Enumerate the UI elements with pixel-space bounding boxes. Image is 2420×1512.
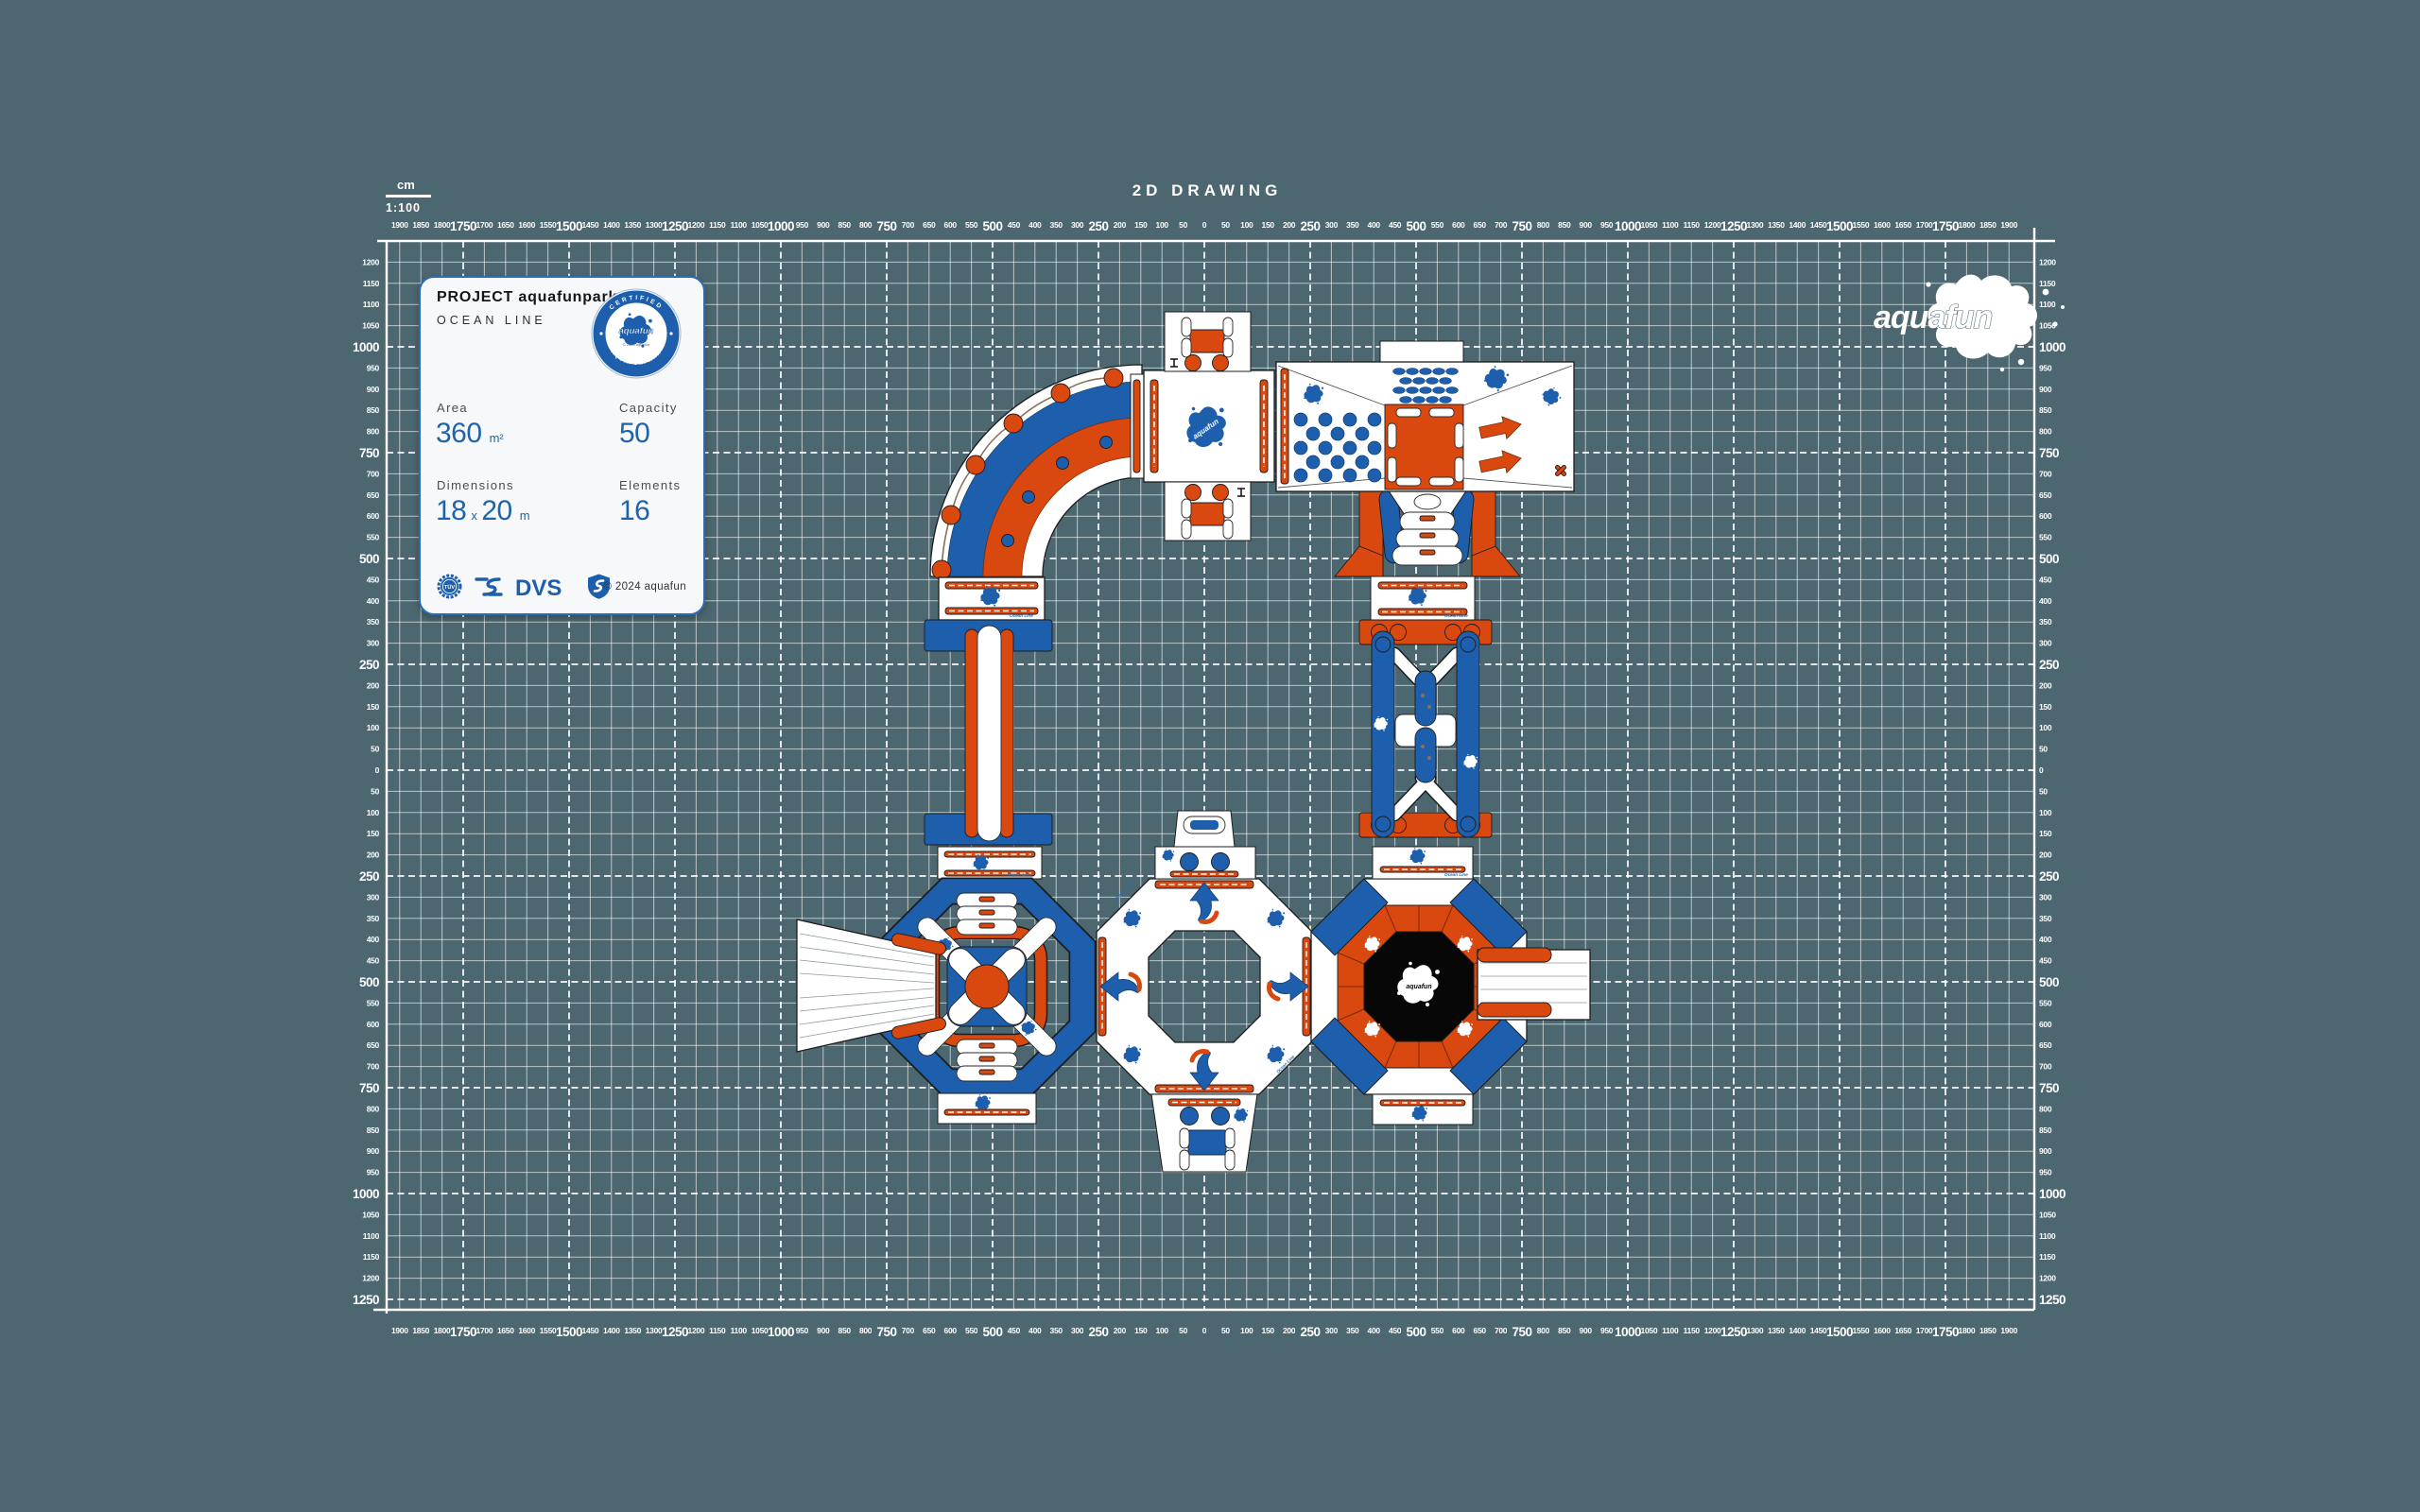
ruler-label: 600	[944, 220, 958, 230]
ruler-label: 800	[859, 220, 873, 230]
brand-logo-text: aquafun	[1874, 300, 1992, 335]
ruler-label: 350	[2039, 617, 2052, 627]
ruler-label: 500	[982, 219, 1002, 233]
ruler-label: 1050	[362, 1210, 379, 1219]
pillow-stack-top	[957, 893, 1017, 935]
ruler-label: 1300	[646, 1326, 663, 1335]
ruler-label: 1050	[1641, 220, 1658, 230]
ruler-label: 250	[2039, 869, 2059, 884]
ruler-label: 700	[367, 1062, 380, 1072]
ruler-label: 900	[367, 1146, 380, 1156]
ruler-label: 1750	[450, 1325, 476, 1339]
ruler-label: 200	[1114, 1326, 1127, 1335]
ruler-label: 1200	[2039, 257, 2056, 266]
ruler-label: 900	[2039, 1146, 2052, 1156]
ruler-label: 1100	[1662, 220, 1679, 230]
ruler-label: 1000	[1615, 1325, 1641, 1339]
ruler-label: 750	[2039, 1081, 2059, 1095]
ruler-label: 1450	[1810, 1326, 1827, 1335]
ruler-label: 600	[944, 1326, 958, 1335]
scale-bar	[386, 195, 431, 198]
ruler-label: 300	[1325, 1326, 1339, 1335]
ruler-label: 200	[1114, 220, 1127, 230]
ruler-label: 550	[965, 220, 978, 230]
ruler-label: 1200	[1704, 220, 1721, 230]
ruler-label: 1300	[1747, 1326, 1764, 1335]
ruler-label: 1550	[1853, 220, 1870, 230]
ruler-label: 850	[367, 1125, 380, 1135]
ruler-label: 1150	[709, 1326, 726, 1335]
ruler-label: 450	[1389, 220, 1402, 230]
ruler-label: 1850	[1979, 220, 1996, 230]
trampoline-brand-label: aquafun	[1406, 984, 1431, 990]
ruler-label: 150	[1262, 1326, 1275, 1335]
ruler-label: 800	[1537, 1326, 1550, 1335]
ruler-label: 1600	[518, 1326, 535, 1335]
ruler-label: 1200	[362, 1274, 379, 1283]
ruler-label: 700	[902, 1326, 915, 1335]
ruler-label: 1150	[1684, 1326, 1701, 1335]
dvs-logo: DVS	[515, 575, 574, 599]
page-title: 2D DRAWING	[1094, 181, 1321, 200]
ruler-label: 50	[1221, 220, 1230, 230]
ruler-label: 1250	[353, 1293, 379, 1307]
tuv-label: TÜV	[444, 584, 455, 591]
ruler-label: 1050	[362, 321, 379, 331]
ruler-label: 1550	[540, 1326, 557, 1335]
ruler-label: 300	[2039, 892, 2052, 902]
ruler-label: 1900	[2000, 1326, 2017, 1335]
ruler-label: 800	[859, 1326, 873, 1335]
ruler-label: 450	[1008, 1326, 1021, 1335]
ruler-label: 150	[367, 702, 380, 712]
ruler-label: 1600	[518, 220, 535, 230]
module-connector-c	[938, 1093, 1036, 1124]
ruler-label: 50	[1221, 1326, 1230, 1335]
ruler-label: 1300	[1747, 220, 1764, 230]
ruler-label: 300	[1325, 220, 1339, 230]
ruler-label: 600	[1452, 220, 1465, 230]
ruler-label: 1450	[1810, 220, 1827, 230]
scale-legend: cm 1:100	[386, 178, 431, 215]
ruler-label: 500	[1406, 1325, 1426, 1339]
ruler-label: 550	[1431, 1326, 1444, 1335]
ruler-label: 800	[1537, 220, 1550, 230]
ruler-label: 1100	[363, 300, 380, 309]
dimensions-label: Dimensions	[437, 478, 514, 492]
ruler-label: 50	[371, 745, 379, 754]
ruler-label: 0	[375, 765, 380, 775]
ruler-label: 600	[2039, 511, 2052, 521]
module-connector-f: Ocean Line	[1371, 576, 1475, 620]
badge-small-copy: © 2024 aquafun	[623, 342, 650, 347]
ruler-label: 450	[367, 575, 380, 584]
ruler-label: 50	[371, 786, 379, 796]
ruler-label: 1100	[1662, 1326, 1679, 1335]
ruler-label: 1900	[391, 1326, 408, 1335]
ruler-label: 500	[2039, 552, 2059, 566]
ruler-label: 1100	[731, 220, 748, 230]
ruler-label: 650	[1474, 1326, 1487, 1335]
ruler-label: 900	[2039, 385, 2052, 394]
ruler-label: 1600	[1874, 220, 1891, 230]
dimension-separator: x	[471, 508, 476, 523]
badge-brand: aquafun	[619, 326, 654, 336]
ruler-label: 1150	[2039, 1252, 2056, 1262]
ruler-label: 1400	[1789, 220, 1806, 230]
ruler-label: 1500	[556, 1325, 582, 1339]
ruler-label: 100	[2039, 723, 2052, 732]
ruler-label: 150	[2039, 829, 2052, 838]
ruler-label: 700	[2039, 469, 2052, 478]
ruler-label: 250	[1088, 219, 1108, 233]
module-connector-b: Ocean Line	[938, 847, 1042, 879]
ruler-label: 400	[1028, 220, 1042, 230]
ruler-label: 900	[817, 220, 830, 230]
ruler-label: 750	[1512, 219, 1531, 233]
capacity-value: 50	[619, 418, 649, 449]
ruler-label: 1750	[450, 219, 476, 233]
ruler-label: 50	[1179, 220, 1187, 230]
ruler-label: 1050	[1641, 1326, 1658, 1335]
module-mountain-slide	[1335, 489, 1520, 576]
module-connector-ring-bottom	[1151, 1094, 1257, 1172]
certified-badge: CERTIFIED AQUAFUNPARK aquafun © 2024 aqu…	[590, 287, 683, 380]
ruler-label: 450	[1008, 220, 1021, 230]
ruler-label: 550	[2039, 533, 2052, 542]
ruler-label: 1850	[412, 220, 429, 230]
ruler-label: 700	[367, 469, 380, 478]
ruler-label: 950	[367, 363, 380, 372]
gs-wave-logo-icon	[475, 575, 503, 599]
ruler-label: 550	[2039, 998, 2052, 1007]
ruler-label: 400	[367, 596, 380, 606]
ruler-label: 350	[367, 617, 380, 627]
ruler-label: 1450	[582, 1326, 599, 1335]
ruler-label: 300	[367, 639, 380, 648]
ruler-label: 50	[2039, 745, 2048, 754]
ruler-label: 600	[1452, 1326, 1465, 1335]
ruler-label: 1600	[1874, 1326, 1891, 1335]
ruler-label: 750	[2039, 446, 2059, 460]
ruler-label: 1250	[662, 219, 688, 233]
ruler-label: 1250	[2039, 1293, 2066, 1307]
module-connector-ring-top	[1155, 811, 1255, 879]
drawing-canvas: 1900190018501850180018001750175017001700…	[0, 0, 2420, 1512]
ruler-label: 650	[923, 1326, 936, 1335]
ruler-label: 1050	[752, 1326, 769, 1335]
dimension-width: 18	[436, 495, 466, 526]
ruler-label: 100	[1240, 1326, 1253, 1335]
ocean-line-label: Ocean Line	[1008, 872, 1031, 877]
ruler-label: 1200	[1704, 1326, 1721, 1335]
ruler-label: 950	[367, 1168, 380, 1177]
ruler-label: 550	[367, 998, 380, 1007]
ocean-line-label: Ocean Line	[1010, 613, 1033, 618]
ruler-label: 900	[367, 385, 380, 394]
ruler-label: 500	[1406, 219, 1426, 233]
ruler-label: 750	[876, 219, 896, 233]
ruler-label: 200	[2039, 680, 2052, 690]
ruler-label: 1550	[540, 220, 557, 230]
ruler-label: 850	[838, 1326, 852, 1335]
ruler-label: 0	[1202, 220, 1207, 230]
ruler-label: 900	[817, 1326, 830, 1335]
ruler-label: 1700	[476, 220, 493, 230]
ruler-label: 1150	[709, 220, 726, 230]
ruler-label: 1100	[363, 1231, 380, 1241]
ruler-label: 1000	[768, 1325, 794, 1339]
ruler-label: 650	[923, 220, 936, 230]
ruler-label: 250	[2039, 658, 2059, 672]
ruler-label: 1800	[1959, 1326, 1976, 1335]
ruler-label: 450	[2039, 956, 2052, 966]
ruler-label: 250	[1300, 1325, 1320, 1339]
ruler-label: 150	[1134, 220, 1148, 230]
ruler-label: 700	[1495, 220, 1508, 230]
ruler-label: 100	[1156, 1326, 1169, 1335]
ruler-label: 550	[367, 533, 380, 542]
module-ladder-bottom	[1165, 482, 1251, 541]
ruler-label: 1400	[1789, 1326, 1806, 1335]
ruler-label: 450	[2039, 575, 2052, 584]
ruler-label: 250	[1088, 1325, 1108, 1339]
ruler-label: 1550	[1853, 1326, 1870, 1335]
ruler-label: 650	[1474, 220, 1487, 230]
ocean-line-label: Ocean Line	[1444, 872, 1468, 877]
ruler-label: 1700	[1916, 1326, 1933, 1335]
ruler-label: 700	[902, 220, 915, 230]
area-value: 360	[436, 418, 482, 449]
ruler-label: 600	[367, 511, 380, 521]
module-summit-climb	[1276, 341, 1574, 491]
ruler-label: 1850	[412, 1326, 429, 1335]
ruler-label: 1050	[2039, 1210, 2056, 1219]
module-connector-d: Ocean Line	[1373, 847, 1473, 879]
ruler-label: 350	[1050, 220, 1063, 230]
ruler-label: 1900	[2000, 220, 2017, 230]
ruler-label: 350	[367, 914, 380, 923]
dimension-length: 20	[481, 495, 511, 526]
ruler-label: 1750	[1932, 1325, 1959, 1339]
ruler-label: 1150	[1684, 220, 1701, 230]
ruler-label: 400	[1368, 1326, 1381, 1335]
ruler-label: 750	[876, 1325, 896, 1339]
ruler-label: 1750	[1932, 219, 1959, 233]
module-exit-ramp-left	[797, 919, 947, 1052]
ruler-label: 900	[1580, 1326, 1593, 1335]
ruler-label: 1450	[582, 220, 599, 230]
ruler-label: 0	[2039, 765, 2044, 775]
certification-logos: TÜV DVS	[437, 573, 612, 600]
ruler-label: 1200	[688, 220, 705, 230]
ruler-label: 750	[1512, 1325, 1531, 1339]
ruler-label: 1150	[363, 1252, 380, 1262]
ruler-label: 1500	[1826, 219, 1853, 233]
ruler-label: 1350	[624, 1326, 641, 1335]
ruler-label: 200	[367, 680, 380, 690]
ruler-label: 850	[838, 220, 852, 230]
module-start-platform: aquafun	[1131, 370, 1274, 482]
module-connector-e	[1373, 1094, 1473, 1125]
copyright: © 2024 aquafun	[603, 581, 686, 593]
ruler-label: 1400	[603, 220, 620, 230]
ruler-label: 1400	[603, 1326, 620, 1335]
ruler-label: 300	[1071, 1326, 1084, 1335]
ruler-label: 1350	[1768, 220, 1785, 230]
park-layout: Ocean Line Ocean Line	[797, 312, 1590, 1172]
ruler-label: 550	[965, 1326, 978, 1335]
ruler-label: 400	[2039, 596, 2052, 606]
ruler-label: 150	[367, 829, 380, 838]
module-balance-beam	[1359, 620, 1492, 837]
area-label: Area	[437, 401, 468, 415]
ruler-label: 1650	[1894, 1326, 1911, 1335]
ruler-label: 150	[1134, 1326, 1148, 1335]
ruler-label: 600	[2039, 1020, 2052, 1029]
ruler-label: 1000	[768, 219, 794, 233]
elements-label: Elements	[619, 478, 681, 492]
module-exit-ramp-right	[1478, 948, 1590, 1020]
ruler-label: 1000	[1615, 219, 1641, 233]
dvs-label: DVS	[515, 576, 562, 599]
ruler-label: 400	[1368, 220, 1381, 230]
ruler-label: 1100	[731, 1326, 748, 1335]
ruler-label: 400	[2039, 935, 2052, 944]
ruler-label: 400	[367, 935, 380, 944]
ruler-label: 600	[367, 1020, 380, 1029]
ruler-label: 1250	[1720, 1325, 1747, 1339]
ruler-label: 850	[1558, 1326, 1571, 1335]
ruler-label: 650	[367, 490, 380, 500]
ruler-label: 800	[367, 1104, 380, 1113]
module-curved-slide	[930, 365, 1142, 579]
ruler-label: 100	[1156, 220, 1169, 230]
dimension-unit: m	[520, 508, 530, 523]
ruler-label: 700	[2039, 1062, 2052, 1072]
ruler-label: 950	[2039, 1168, 2052, 1177]
ruler-label: 1650	[497, 220, 514, 230]
ruler-label: 1700	[476, 1326, 493, 1335]
module-connector-a: Ocean Line	[939, 577, 1045, 620]
ruler-label: 850	[367, 405, 380, 415]
ruler-label: 300	[367, 892, 380, 902]
ruler-label: 300	[2039, 639, 2052, 648]
ruler-label: 950	[1600, 1326, 1614, 1335]
ruler-label: 400	[1028, 1326, 1042, 1335]
ruler-label: 100	[2039, 808, 2052, 817]
ruler-label: 850	[2039, 405, 2052, 415]
ruler-label: 1000	[353, 1187, 379, 1201]
ruler-label: 50	[2039, 786, 2048, 796]
ruler-label: 1250	[662, 1325, 688, 1339]
ruler-label: 950	[796, 220, 809, 230]
ruler-label: 1200	[688, 1326, 705, 1335]
ruler-label: 950	[796, 1326, 809, 1335]
ruler-label: 1800	[434, 220, 451, 230]
ruler-label: 1300	[646, 220, 663, 230]
scale-ratio: 1:100	[386, 201, 431, 215]
ruler-label: 550	[1431, 220, 1444, 230]
ruler-label: 100	[367, 723, 380, 732]
ruler-label: 800	[2039, 1104, 2052, 1113]
ruler-label: 1650	[1894, 220, 1911, 230]
ruler-label: 1200	[2039, 1274, 2056, 1283]
ruler-label: 1500	[1826, 1325, 1853, 1339]
ruler-label: 350	[1050, 1326, 1063, 1335]
ruler-label: 650	[2039, 1040, 2052, 1050]
ruler-label: 1350	[624, 220, 641, 230]
ruler-label: 1500	[556, 219, 582, 233]
project-info-card: PROJECT aquafunpark OCEAN LINE CERTIFIED…	[419, 276, 705, 615]
ruler-label: 850	[1558, 220, 1571, 230]
ocean-line-label: Ocean Line	[1444, 613, 1468, 618]
ruler-label: 350	[1346, 1326, 1359, 1335]
ruler-label: 1650	[497, 1326, 514, 1335]
ruler-label: 1850	[1979, 1326, 1996, 1335]
ruler-label: 750	[359, 1081, 379, 1095]
tuv-logo-icon: TÜV	[437, 574, 462, 599]
ruler-label: 250	[359, 658, 379, 672]
ruler-label: 150	[2039, 702, 2052, 712]
ruler-label: 100	[367, 808, 380, 817]
ruler-label: 700	[1495, 1326, 1508, 1335]
ruler-label: 200	[2039, 850, 2052, 860]
module-beam	[925, 620, 1052, 845]
ruler-label: 1800	[1959, 220, 1976, 230]
ruler-label: 650	[2039, 490, 2052, 500]
ruler-label: 1100	[2039, 1231, 2056, 1241]
ruler-label: 300	[1071, 220, 1084, 230]
ruler-label: 1000	[2039, 1187, 2066, 1201]
ruler-label: 950	[1600, 220, 1614, 230]
ruler-label: 850	[2039, 1125, 2052, 1135]
ruler-label: 200	[1283, 220, 1296, 230]
ruler-label: 450	[367, 956, 380, 966]
ruler-label: 1050	[752, 220, 769, 230]
ruler-label: 450	[1389, 1326, 1402, 1335]
ruler-label: 750	[359, 446, 379, 460]
brand-logo: aquafun	[1870, 269, 2068, 378]
ruler-label: 1000	[353, 340, 379, 354]
ruler-label: 50	[1179, 1326, 1187, 1335]
product-line: OCEAN LINE	[437, 314, 546, 327]
module-ladder-top	[1165, 312, 1251, 371]
ruler-label: 800	[367, 427, 380, 437]
capacity-label: Capacity	[619, 401, 678, 415]
ruler-label: 250	[359, 869, 379, 884]
pillow-stack-bottom	[957, 1039, 1017, 1081]
ruler-label: 1350	[1768, 1326, 1785, 1335]
ruler-label: 250	[1300, 219, 1320, 233]
ruler-label: 500	[2039, 975, 2059, 989]
ruler-label: 500	[359, 975, 379, 989]
ruler-label: 0	[1202, 1326, 1207, 1335]
ruler-label: 500	[982, 1325, 1002, 1339]
ruler-label: 1150	[363, 279, 380, 288]
ruler-label: 1800	[434, 1326, 451, 1335]
ruler-label: 900	[1580, 220, 1593, 230]
ruler-label: 1700	[1916, 220, 1933, 230]
ruler-label: 1250	[1720, 219, 1747, 233]
ruler-label: 1200	[362, 257, 379, 266]
area-unit: m²	[490, 431, 504, 445]
ruler-label: 100	[1240, 220, 1253, 230]
ruler-label: 350	[2039, 914, 2052, 923]
elements-value: 16	[619, 495, 649, 526]
ruler-label: 1900	[391, 220, 408, 230]
scale-unit: cm	[397, 178, 431, 192]
